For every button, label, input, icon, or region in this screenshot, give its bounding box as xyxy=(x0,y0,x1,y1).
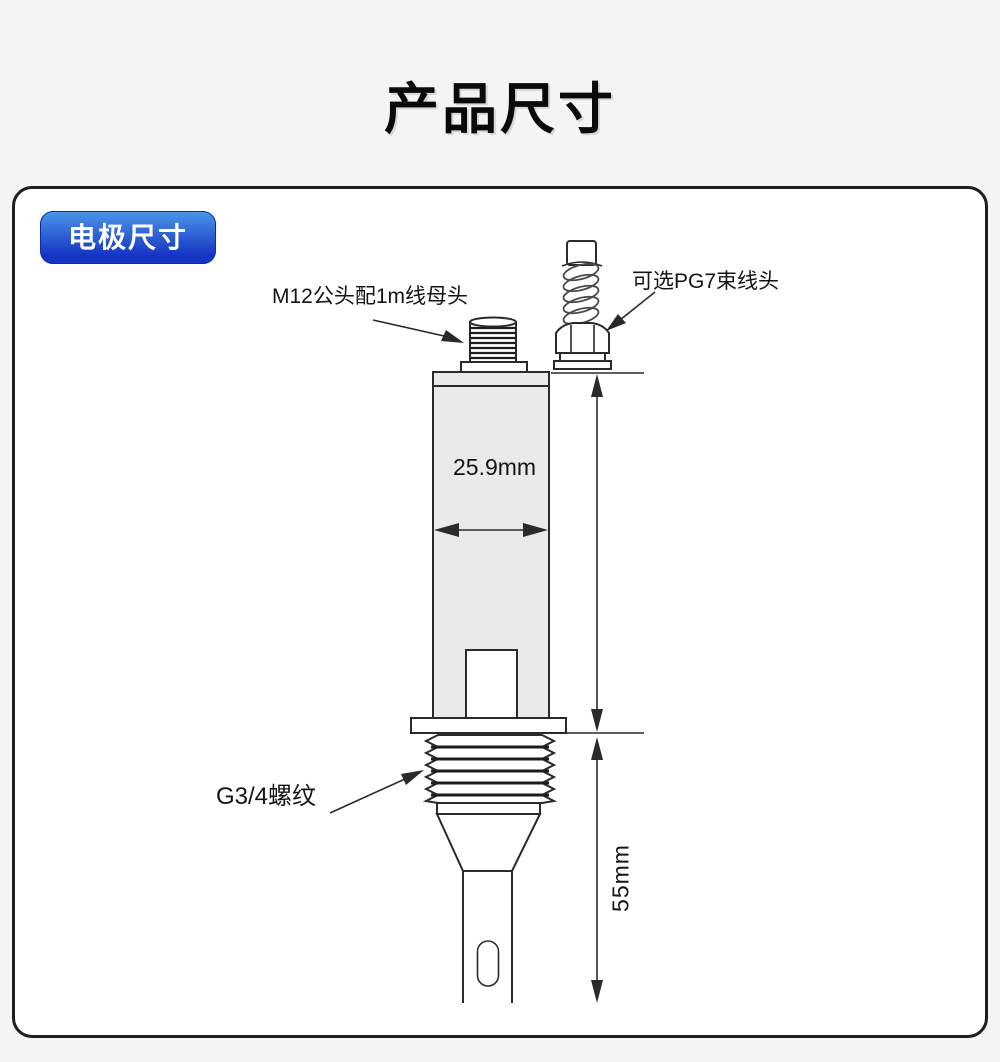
pg7-spring-coil xyxy=(562,283,600,306)
thread-collar xyxy=(437,803,540,814)
m12-leader-line xyxy=(373,320,444,336)
flange xyxy=(411,718,566,733)
m12-base-plate xyxy=(461,362,527,372)
pg7-gland xyxy=(554,241,611,369)
arrowhead-down xyxy=(591,980,603,1003)
m12-connector xyxy=(461,318,527,373)
g34-leader-arrowhead xyxy=(401,770,424,785)
g34-leader-line xyxy=(330,779,405,813)
taper-cone xyxy=(437,814,540,871)
body-notch xyxy=(466,650,517,718)
probe-length-value: 55mm xyxy=(608,844,635,912)
pg7-hex-nut xyxy=(556,323,609,353)
sensor-body xyxy=(411,372,566,733)
g34-thread-section xyxy=(426,735,554,803)
g34-thread-label: G3/4螺纹 xyxy=(216,776,316,811)
probe-tip xyxy=(437,803,540,1003)
arrowhead-up xyxy=(591,737,603,760)
m12-top-cap xyxy=(470,318,516,327)
pg7-neck xyxy=(560,353,605,361)
arrowhead-up xyxy=(591,374,603,397)
m12-connector-label: M12公头配1m线母头 xyxy=(272,280,468,310)
pg7-spring-coil xyxy=(562,294,600,317)
pg7-leader-arrowhead xyxy=(606,314,626,331)
thread-outline xyxy=(426,735,554,803)
m12-leader-arrowhead xyxy=(441,330,464,343)
pg7-spring-coil xyxy=(562,272,600,295)
pg7-leader-line xyxy=(620,292,655,320)
pg7-gland-label: 可选PG7束线头 xyxy=(632,265,779,295)
arrowhead-down xyxy=(591,709,603,732)
body-width-value: 25.9mm xyxy=(453,454,536,481)
electrode-diagram xyxy=(0,0,1000,1062)
probe-slot xyxy=(478,941,499,986)
pg7-base-nut xyxy=(554,361,611,369)
